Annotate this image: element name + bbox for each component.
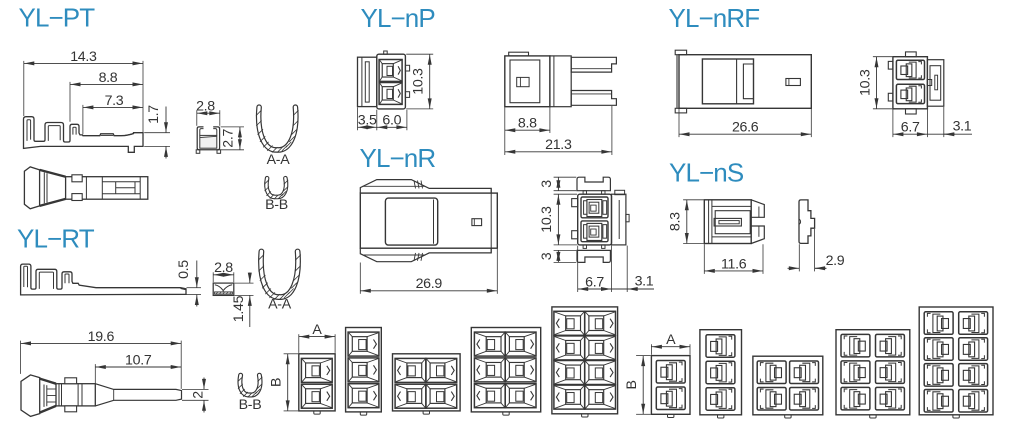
svg-text:YL−nS: YL−nS	[669, 158, 744, 188]
svg-text:3: 3	[539, 252, 555, 260]
svg-text:7.3: 7.3	[105, 93, 124, 109]
svg-text:A: A	[312, 322, 322, 338]
svg-text:1.45: 1.45	[231, 295, 247, 322]
svg-text:A-A: A-A	[268, 297, 292, 313]
svg-text:YL−nP: YL−nP	[361, 3, 435, 33]
svg-text:19.6: 19.6	[88, 329, 115, 345]
svg-text:21.3: 21.3	[545, 137, 572, 153]
svg-text:26.6: 26.6	[732, 120, 759, 136]
svg-text:8.3: 8.3	[668, 212, 684, 231]
svg-text:10.3: 10.3	[411, 68, 427, 95]
svg-text:10.3: 10.3	[857, 69, 873, 96]
svg-text:8.8: 8.8	[518, 116, 537, 132]
svg-text:YL−nRF: YL−nRF	[669, 3, 760, 33]
svg-text:11.6: 11.6	[721, 256, 747, 272]
svg-text:B-B: B-B	[239, 397, 262, 413]
svg-text:YL−nR: YL−nR	[360, 143, 436, 173]
svg-text:6.7: 6.7	[901, 120, 920, 136]
svg-text:3: 3	[539, 180, 555, 188]
svg-text:0.5: 0.5	[176, 260, 192, 279]
svg-text:6.0: 6.0	[382, 113, 401, 129]
svg-text:2: 2	[191, 391, 207, 399]
svg-text:3.1: 3.1	[635, 274, 654, 290]
svg-text:10.7: 10.7	[125, 352, 152, 368]
svg-text:2.8: 2.8	[196, 99, 215, 115]
svg-text:B-B: B-B	[265, 197, 288, 213]
svg-text:3.1: 3.1	[953, 119, 972, 135]
svg-text:14.3: 14.3	[70, 49, 97, 65]
svg-text:A: A	[666, 332, 676, 348]
svg-text:10.3: 10.3	[539, 206, 555, 233]
svg-text:B: B	[624, 380, 640, 389]
svg-text:6.7: 6.7	[585, 274, 604, 290]
svg-text:8.8: 8.8	[99, 70, 118, 86]
svg-text:1.7: 1.7	[146, 105, 162, 124]
svg-text:B: B	[269, 378, 285, 387]
svg-text:3.5: 3.5	[358, 113, 377, 129]
svg-text:2.8: 2.8	[214, 260, 233, 276]
svg-text:2.7: 2.7	[221, 129, 237, 148]
svg-text:YL−PT: YL−PT	[19, 2, 96, 32]
svg-text:A-A: A-A	[267, 152, 291, 168]
svg-text:YL−RT: YL−RT	[17, 224, 95, 254]
svg-text:2.9: 2.9	[826, 253, 845, 269]
svg-text:26.9: 26.9	[416, 276, 443, 292]
